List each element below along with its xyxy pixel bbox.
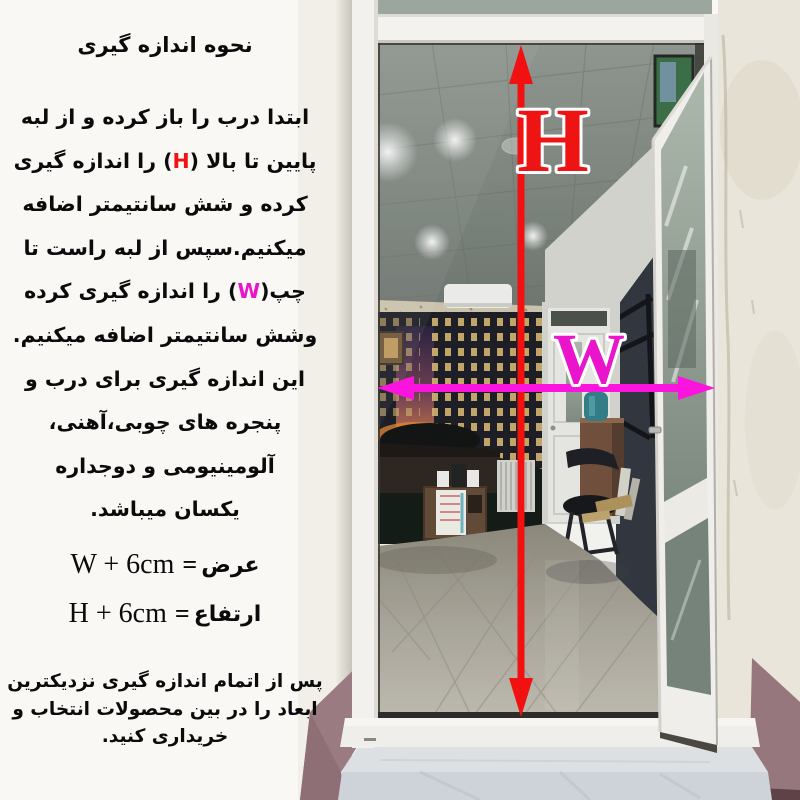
width-formula-label: عرض <box>201 553 259 578</box>
instruction-line: پنجره های چوبی،آهنی، <box>0 401 330 445</box>
instruction-line: وشش سانتیمتر اضافه میکنیم. <box>0 314 330 358</box>
door-glass-lower <box>665 518 711 695</box>
footer-line: پس از اتمام اندازه گیری نزدیکترین <box>0 668 330 696</box>
open-door-panel <box>649 57 717 753</box>
instruction-line: کرده و شش سانتیمتر اضافه <box>0 183 330 227</box>
width-formula: W + 6cm = عرض <box>0 545 330 585</box>
width-label: W <box>553 319 625 399</box>
instruction-line: پایین تا بالا (H) را اندازه گیری <box>0 140 330 184</box>
instruction-line: ابتدا درب را باز کرده و از لبه <box>0 96 330 140</box>
door-handle <box>649 427 661 433</box>
height-formula-label: ارتفاع <box>194 602 262 627</box>
footer-note: پس از اتمام اندازه گیری نزدیکترینابعاد ر… <box>0 668 330 751</box>
instruction-paragraph: ابتدا درب را باز کرده و از لبهپایین تا ب… <box>0 96 330 532</box>
instruction-line: میکنیم.سپس از لبه راست تا <box>0 227 330 271</box>
footer-line: خریداری کنید. <box>0 723 330 751</box>
width-formula-latin: W + 6cm <box>70 549 174 581</box>
instruction-line: این اندازه گیری برای درب و <box>0 358 330 402</box>
footer-line: ابعاد را در بین محصولات انتخاب و <box>0 696 330 724</box>
measurement-guide-image: H W نحوه اندازه گیری ابتدا درب را باز کر… <box>0 0 800 800</box>
height-label: H <box>517 89 589 191</box>
instruction-line: آلومینیومی و دوجداره <box>0 445 330 489</box>
height-formula-equals: = <box>175 599 190 629</box>
height-formula-latin: H + 6cm <box>69 598 167 630</box>
instruction-line: یکسان میباشد. <box>0 488 330 532</box>
instruction-line: چپ(W) را اندازه گیری کرده <box>0 270 330 314</box>
width-formula-equals: = <box>182 550 197 580</box>
page-title: نحوه اندازه گیری <box>0 33 330 57</box>
height-formula: H + 6cm = ارتفاع <box>0 594 330 634</box>
